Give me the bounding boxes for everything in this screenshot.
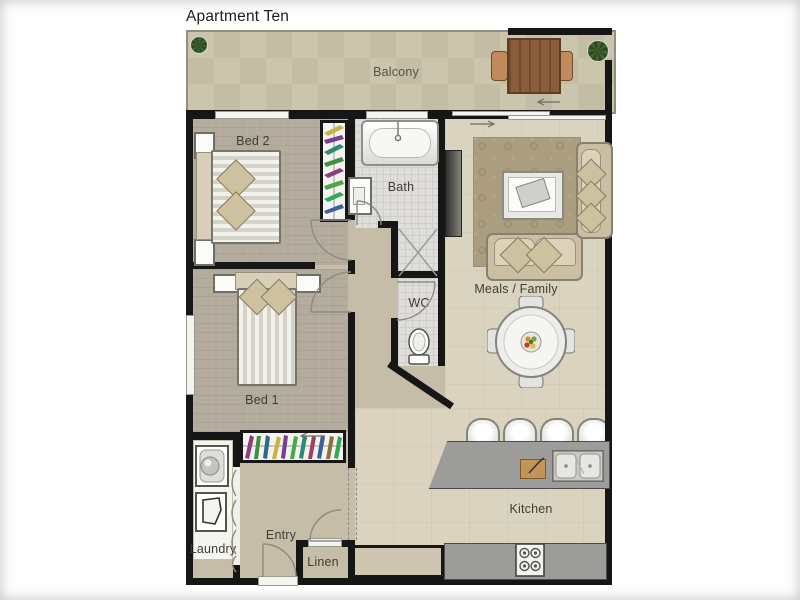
balcony-slider-door <box>508 115 606 120</box>
wall-wc-right <box>438 278 445 366</box>
plan-title: Apartment Ten <box>186 8 289 26</box>
wall-corridor-post <box>348 260 355 274</box>
bath-window <box>366 111 428 119</box>
bed1-label: Bed 1 <box>245 393 279 407</box>
balcony-label: Balcony <box>373 65 419 79</box>
coffee-table <box>502 171 564 220</box>
potted-plant-icon <box>587 40 609 62</box>
bathtub <box>361 120 439 166</box>
linen-label: Linen <box>307 555 339 569</box>
laundry-tub <box>195 492 227 532</box>
wc-label: WC <box>408 296 429 310</box>
kitchen-label: Kitchen <box>509 502 552 516</box>
meals-family-label: Meals / Family <box>474 282 557 296</box>
floorplan-page: { "title": "Apartment Ten", "labels": { … <box>0 0 800 600</box>
bed2-wardrobe <box>320 120 348 222</box>
laundry-label: Laundry <box>190 542 237 556</box>
outdoor-chair <box>491 51 508 81</box>
bath-label: Bath <box>388 180 415 194</box>
wall-bed1-right <box>348 312 355 442</box>
vanity-bowl <box>353 187 365 205</box>
bed2-window <box>215 111 289 119</box>
cooktop <box>515 543 545 577</box>
washing-machine <box>195 445 229 487</box>
wall-balcony-right <box>605 60 612 114</box>
dining-set <box>487 296 575 388</box>
wall-entry-right-top <box>348 442 355 468</box>
wall-wc-left-lower <box>391 318 398 366</box>
entry-door-threshold <box>258 576 298 586</box>
wall-shower-left <box>391 221 398 278</box>
potted-plant-icon <box>190 36 208 54</box>
kitchen-double-sink <box>552 450 604 482</box>
cabinet-bench <box>352 545 444 578</box>
bed2-mattress <box>211 150 281 244</box>
tv <box>445 150 462 237</box>
vanity-basin <box>348 177 372 215</box>
bathtub-basin <box>369 128 431 158</box>
bed1-window <box>186 315 195 395</box>
entry-cased-opening <box>348 468 357 540</box>
toilet <box>405 328 433 366</box>
wall-laundry-right-top <box>233 438 240 467</box>
linen-door-leaf <box>308 538 342 547</box>
bed1-nightstand <box>295 274 321 293</box>
bed1-wardrobe <box>240 430 346 463</box>
bed2-label: Bed 2 <box>236 134 270 148</box>
wall-balcony-top-right <box>508 28 612 35</box>
wardrobe-clothes-icon <box>323 123 345 219</box>
wall-bath-right <box>438 118 445 278</box>
cutting-board <box>520 459 546 479</box>
wall-laundry-right-bottom <box>233 563 240 578</box>
entry-label: Entry <box>266 528 296 542</box>
wall-shower-wc-divider <box>391 271 445 278</box>
wardrobe-clothes-icon <box>243 433 343 460</box>
outdoor-table <box>507 38 561 94</box>
